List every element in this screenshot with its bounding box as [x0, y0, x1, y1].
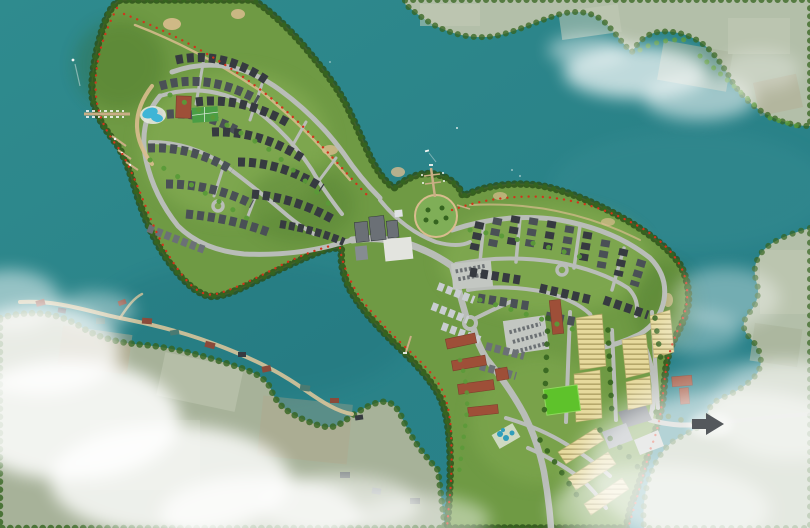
exit-arrow-icon [688, 412, 732, 438]
masterplan-svg [0, 0, 810, 528]
masterplan-image [0, 0, 810, 528]
marina-park [415, 195, 457, 237]
sports-field [543, 385, 580, 415]
tennis-courts [192, 106, 219, 123]
clubhouse [176, 96, 192, 119]
